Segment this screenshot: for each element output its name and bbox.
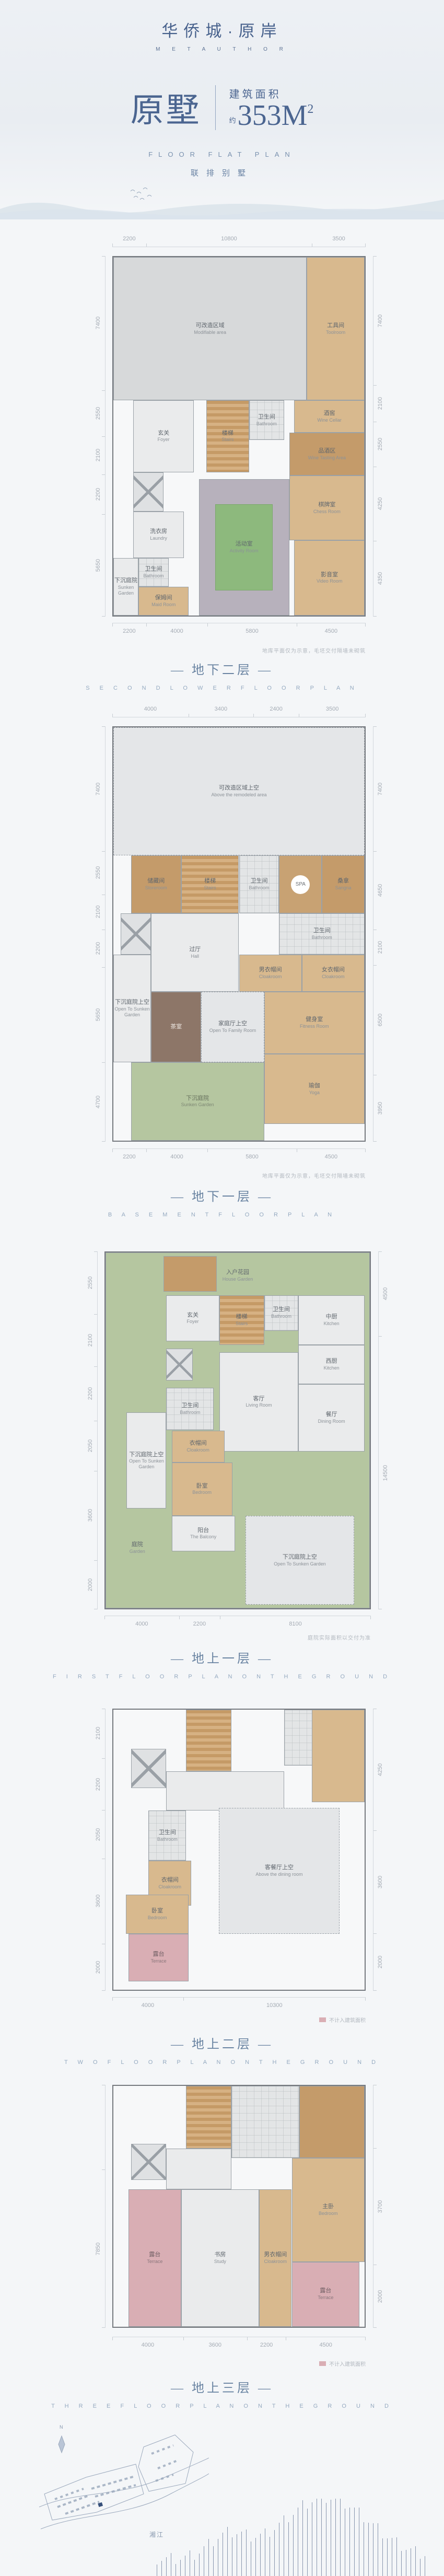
plan-body-f3: 露台Terrace书房Study男衣帽间Cloakroom主卧Bedroom露台…: [112, 2085, 366, 2328]
room-label-en: Foyer: [158, 437, 170, 443]
dim-segment: 2550: [84, 1251, 97, 1314]
room-hall: [166, 2149, 231, 2189]
room-label-en: Bathroom: [271, 1314, 291, 1319]
room-label-zh: 楼梯: [204, 878, 216, 885]
dim-segment: 2100: [373, 930, 387, 965]
room-label-zh: 棋牌室: [318, 502, 335, 509]
room-label-en: Living Room: [246, 1402, 272, 1408]
room-label-zh: 卫生间: [181, 1402, 198, 1410]
dim-label: 7400: [377, 782, 383, 795]
skyline-line: [411, 2548, 411, 2576]
brand-logo-en: M E T A U T H O R: [0, 47, 444, 52]
dim-label: 2050: [95, 1828, 101, 1840]
dim-segment: 3400: [189, 704, 253, 717]
dim-segment: 2200: [91, 474, 105, 514]
room-label-en: Hall: [191, 954, 200, 959]
dim-label: 2200: [247, 2342, 286, 2348]
dim-label: 2550: [87, 1277, 94, 1289]
dim-segment: 4700: [91, 1062, 105, 1142]
dim-chain-bottom: 400022008100: [104, 1616, 371, 1629]
skyline-line: [354, 2508, 355, 2576]
dim-label: 2400: [253, 706, 299, 712]
room-kitchen-chinese: 中厨Kitchen: [298, 1295, 365, 1345]
dim-label: 2100: [95, 1727, 101, 1739]
room-label-zh: 桑拿: [337, 878, 349, 885]
dim-label: 7400: [95, 317, 101, 329]
skyline-line: [293, 2515, 294, 2576]
room-label-en: Terrace: [151, 1958, 167, 1964]
room-label-en: Stairs: [221, 437, 233, 443]
north-arrow-icon: [59, 2436, 65, 2453]
skyline-line: [345, 2509, 345, 2576]
room-label-zh: 卧室: [196, 1483, 208, 1490]
room-tea-room: 茶室: [151, 992, 201, 1062]
dim-segment: 4000: [146, 1149, 208, 1162]
brand-logo-zh: 华侨城·原岸: [0, 18, 444, 41]
skyline-line: [368, 2523, 369, 2576]
skyline-line: [288, 2522, 289, 2576]
dim-segment: 2550: [91, 851, 105, 894]
dim-chain-left: 740025502100220056504700: [91, 726, 106, 1142]
skyline-line: [265, 2528, 265, 2576]
room-sauna: 桑拿Sangna: [322, 855, 365, 913]
room-balcony: 阳台The Balcony: [172, 1516, 235, 1551]
dim-label: 2200: [179, 1621, 220, 1627]
dim-segment: 4500: [286, 2337, 366, 2350]
dim-segment: 2200: [112, 234, 146, 247]
room-stairs: 楼梯Stairs: [206, 400, 249, 472]
room-label-zh: 入户花园: [226, 1269, 249, 1277]
room-label-zh: 过厅: [189, 946, 201, 954]
skyline-line: [270, 2537, 270, 2576]
dim-chain-top: 4000340024003500: [112, 704, 366, 717]
room-bedroom-2: 卧室Bedroom: [126, 1895, 189, 1934]
room-activity-room: 活动室Activity Room: [199, 479, 289, 616]
room-label-en: Laundry: [150, 536, 167, 541]
room-laundry: 洗衣房Laundry: [133, 512, 183, 558]
room-label-en: Bathroom: [312, 935, 332, 941]
room-label-en: Wine Cellar: [317, 417, 342, 423]
room-label-zh: 品酒区: [318, 448, 335, 455]
room-foyer: 玄关Foyer: [166, 1295, 219, 1342]
skyline-line: [161, 2561, 162, 2576]
dim-segment: 2050: [91, 1810, 105, 1859]
dim-label: 4250: [377, 497, 383, 509]
skyline-line: [185, 2556, 185, 2576]
skyline-line: [194, 2560, 195, 2576]
skyline-line: [237, 2534, 237, 2576]
room-label-en: Stairs: [236, 1321, 248, 1327]
dim-segment: 3600: [84, 1471, 97, 1560]
dim-segment: 2550: [91, 390, 105, 436]
room-wardrobe: [299, 2086, 365, 2158]
plan-body-b1: 可改造区域上空Above the remodeled area储藏间Storer…: [112, 726, 366, 1142]
area-sup: 2: [307, 102, 313, 117]
legend-label: 不计入建筑面积: [329, 2018, 366, 2024]
room-elevator: [131, 1749, 166, 1788]
room-label-zh: 客餐厅上空: [265, 1864, 294, 1872]
legend-label: 不计入建筑面积: [329, 2362, 366, 2368]
room-bathroom-1: 卫生间Bathroom: [239, 855, 279, 913]
room-garden-label: 庭院Garden: [113, 1530, 161, 1565]
room-label-en: Yoga: [309, 1090, 320, 1096]
skyline-line: [378, 2523, 378, 2576]
room-label-en: Sunken Garden: [114, 585, 138, 596]
room-label-en: Dining Room: [318, 1419, 345, 1424]
skyline-line: [387, 2538, 388, 2576]
dim-label: 2100: [95, 906, 101, 918]
dim-chain-right: 74002100255042504350: [373, 256, 387, 617]
room-kitchen-western: 西厨Kitchen: [298, 1345, 365, 1384]
north-label: N: [60, 2424, 63, 2430]
room-label-en: Bedroom: [192, 1490, 212, 1495]
dim-segment: [373, 2085, 387, 2148]
skyline-line: [255, 2538, 256, 2576]
room-elevator: [121, 913, 151, 955]
skyline-line: [396, 2537, 397, 2576]
dim-segment: 2100: [91, 895, 105, 930]
dim-chain-right: 425036002000: [373, 1709, 387, 1991]
room-sunken-void: 下沉庭院上空Open To Sunken Garden: [113, 955, 151, 1062]
room-label-zh: 男衣帽间: [259, 967, 282, 974]
area-approx: 约: [229, 115, 236, 125]
room-terrace: 露台Terrace: [128, 1934, 189, 1981]
skyline-line: [298, 2508, 298, 2576]
skyline-line: [190, 2550, 190, 2576]
dim-label: 2200: [95, 488, 101, 501]
skyline-line: [218, 2539, 218, 2576]
room-modifiable-area: 可改造区域Modifiable area: [113, 257, 307, 400]
skyline-line: [204, 2546, 204, 2576]
dim-segment: 3600: [183, 2337, 247, 2350]
room-label-en: Modifiable area: [194, 330, 226, 335]
room-label-zh: 瑜伽: [309, 1083, 320, 1090]
dim-segment: 2100: [91, 1709, 105, 1758]
area-label: 建筑面积: [229, 86, 282, 101]
room-label-en: Study: [214, 2259, 226, 2265]
room-bedroom: 卧室Bedroom: [172, 1463, 232, 1516]
plan-f3: 露台Terrace书房Study男衣帽间Cloakroom主卧Bedroom露台…: [0, 2080, 444, 2424]
skyline-line: [317, 2499, 317, 2576]
dim-segment: 7400: [91, 726, 105, 851]
dim-segment: 4000: [146, 623, 208, 636]
room-label-zh: 男衣帽间: [264, 2252, 287, 2259]
dim-label: 2100: [377, 941, 383, 954]
dim-label: 2200: [87, 1387, 94, 1399]
room-label-en: Above the remodeled area: [211, 792, 266, 798]
dim-segment: 3500: [299, 704, 366, 717]
room-label-zh: 露台: [149, 2252, 160, 2259]
room-label-zh: 楼梯: [236, 1314, 248, 1321]
room-label-zh: 下沉庭院上空: [129, 1452, 163, 1459]
room-label-en: Open To Sunken Garden: [274, 1561, 325, 1567]
dim-segment: 2200: [84, 1366, 97, 1421]
room-label-en: Sunken Garden: [181, 1102, 214, 1108]
dim-segment: 2200: [179, 1616, 220, 1629]
skyline-line: [251, 2542, 251, 2576]
room-family-void: 家庭厅上空Open To Family Room: [201, 992, 264, 1062]
room-entry-deck: [163, 1256, 216, 1292]
skyline-line: [302, 2500, 303, 2576]
dim-label: 7850: [95, 2242, 101, 2255]
dim-label: 5800: [207, 628, 296, 634]
dim-segment: 3700: [373, 2148, 387, 2265]
dim-segment: 5650: [91, 967, 105, 1063]
dim-label: 2200: [95, 942, 101, 955]
dim-label: 2000: [95, 1961, 101, 1974]
dim-label: 2100: [95, 449, 101, 461]
subtitle-en: FLOOR FLAT PLAN: [0, 150, 444, 158]
plan-body-b2: 可改造区域Modifiable area工具间Toolroom玄关Foyer楼梯…: [112, 256, 366, 617]
room-bathroom-1: 卫生间Bathroom: [249, 400, 284, 439]
room-label-zh: 卫生间: [159, 1829, 176, 1837]
dim-segment: 4350: [373, 541, 387, 617]
dim-label: 4500: [286, 2342, 366, 2348]
room-label-zh: 卧室: [151, 1908, 163, 1915]
room-label-zh: 玄关: [158, 430, 169, 437]
dim-label: 5650: [95, 1008, 101, 1021]
room-label-zh: 庭院: [132, 1541, 143, 1549]
room-sunken-void-left: 下沉庭院上空Open To Sunken Garden: [126, 1412, 166, 1509]
room-label-zh: 女衣帽间: [322, 967, 345, 974]
room-bathroom-1: 卫生间Bathroom: [264, 1295, 299, 1331]
room-label-zh: 中厨: [326, 1314, 337, 1321]
brochure-page: 华侨城·原岸 M E T A U T H O R 原墅 建筑面积 约 353M …: [0, 0, 444, 2576]
dim-segment: 3600: [373, 1830, 387, 1933]
room-label-zh: 酒窖: [324, 410, 335, 417]
room-hall: 过厅Hall: [151, 913, 239, 992]
plan-b1: 可改造区域上空Above the remodeled area储藏间Storer…: [0, 690, 444, 1244]
room-label-en: The Balcony: [190, 1534, 216, 1540]
room-foyer: 玄关Foyer: [133, 400, 193, 472]
room-label-en: Bathroom: [249, 885, 269, 891]
skyline-line: [208, 2539, 209, 2576]
dim-label: 7400: [95, 782, 101, 795]
room-sunken-void-right: 下沉庭院上空Open To Sunken Garden: [246, 1516, 354, 1605]
room-label-en: Bathroom: [157, 1837, 178, 1842]
skyline-line: [340, 2499, 341, 2576]
room-label-en: Cloakroom: [322, 974, 345, 980]
dim-segment: 6500: [373, 965, 387, 1075]
dim-chain-left: 21002200205036002000: [91, 1709, 106, 1991]
room-label-zh: SPA: [291, 875, 310, 894]
plan-caption-en: T H R E E F L O O R P L A N O N T H E G …: [0, 2403, 444, 2409]
room-label-zh: 餐厅: [326, 1411, 337, 1419]
room-fitness: 健身室Fitness Room: [264, 992, 365, 1054]
plan-body-f2: 卫生间Bathroom客餐厅上空Above the dining room衣帽间…: [112, 1709, 366, 1991]
dim-label: 5800: [207, 1154, 296, 1160]
room-label-zh: 阳台: [197, 1527, 209, 1535]
room-label-en: Open To Sunken Garden: [127, 1458, 166, 1470]
room-label-en: Toolroom: [326, 330, 345, 335]
dim-label: 10300: [183, 2002, 366, 2009]
dim-segment: 2200: [112, 1149, 146, 1162]
dim-chain-top: 2200108003500: [112, 234, 366, 247]
room-label-zh: 工具间: [327, 322, 344, 330]
title-block: 原墅 建筑面积 约 353M 2: [0, 84, 444, 132]
room-bathroom-2: 卫生间Bathroom: [138, 558, 169, 587]
plan-caption: — 地下一层 —B A S E M E N T F L O O R P L A …: [0, 1186, 444, 1218]
room-label-zh: 衣帽间: [190, 1440, 207, 1447]
skyline-decoration: [157, 2499, 443, 2576]
room-label-en: Wine Tasting Area: [308, 455, 346, 461]
room-label-en: Above the dining room: [255, 1872, 302, 1877]
room-bathroom-2: 卫生间Bathroom: [148, 1811, 186, 1861]
room-elevator: [133, 472, 163, 512]
dim-segment: 5800: [207, 1149, 296, 1162]
header: 华侨城·原岸 M E T A U T H O R 原墅 建筑面积 约 353M …: [0, 0, 444, 219]
dim-label: 2550: [377, 438, 383, 450]
dim-segment: 7400: [373, 256, 387, 385]
dim-segment: 4500: [297, 1149, 366, 1162]
room-label-en: Bathroom: [180, 1410, 200, 1415]
skyline-line: [331, 2500, 331, 2576]
room-label-en: Terrace: [318, 2295, 333, 2301]
dim-label: 4700: [95, 1096, 101, 1108]
room-label-zh: 下沉庭院上空: [283, 1554, 317, 1561]
dim-segment: 2000: [373, 2265, 387, 2328]
room-elevator: [166, 1349, 193, 1380]
room-remodeled-void: 可改造区域上空Above the remodeled area: [113, 727, 365, 855]
room-label-zh: 衣帽间: [161, 1877, 179, 1884]
dim-segment: 2200: [91, 1758, 105, 1810]
room-storeroom: 储藏间Storeroom: [131, 855, 181, 913]
room-terrace-left: 露台Terrace: [128, 2189, 181, 2327]
room-label-zh: 茶室: [170, 1024, 182, 1031]
area-block: 建筑面积 约 353M 2: [229, 86, 314, 130]
skyline-line: [392, 2538, 392, 2576]
dim-segment: 3500: [312, 234, 366, 247]
room-label-en: Kitchen: [324, 1321, 340, 1327]
area-value: 353M: [238, 101, 308, 130]
room-label-zh: 露台: [320, 2288, 331, 2295]
dim-segment: 4500: [297, 623, 366, 636]
skyline-line: [373, 2523, 373, 2576]
plan-note: 地库平面仅为示意，毛坯交付隔墙未砌筑: [112, 1171, 366, 1179]
page-title: 原墅: [131, 84, 202, 132]
plan-caption: — 地上二层 —T W O F L O O R P L A N O N T H …: [0, 2034, 444, 2066]
dim-label: 2550: [95, 866, 101, 879]
dim-segment: 2200: [91, 930, 105, 967]
dim-chain-bottom: 400010300: [112, 1997, 366, 2010]
dim-label: 4500: [382, 1287, 389, 1300]
room-sunken-garden: 下沉庭院Sunken Garden: [131, 1062, 264, 1141]
dim-segment: 8100: [220, 1616, 371, 1629]
plan-caption-zh: — 地下一层 —: [0, 1186, 444, 1204]
plan-caption: — 地下二层 —S E C O N D L O W E R F L O O R …: [0, 659, 444, 691]
dim-label: 2550: [95, 407, 101, 420]
room-label-en: Cloakroom: [259, 974, 282, 980]
dim-segment: 5650: [91, 514, 105, 617]
dim-segment: 14500: [379, 1336, 392, 1609]
dim-segment: 4650: [373, 851, 387, 930]
skyline-line: [213, 2546, 214, 2576]
room-label-en: Open To Sunken Garden: [114, 1006, 150, 1018]
skyline-line: [284, 2515, 284, 2576]
dim-segment: 4250: [373, 467, 387, 541]
dim-label: 2000: [87, 1579, 94, 1591]
skyline-line: [241, 2532, 242, 2576]
dim-segment: 4000: [112, 1998, 183, 2010]
dim-label: 8100: [220, 1621, 371, 1627]
room-label-zh: 露台: [153, 1951, 165, 1958]
room-label-en: Garden: [130, 1549, 145, 1554]
dim-segment: 5800: [207, 623, 296, 636]
room-label-en: Foyer: [186, 1319, 198, 1325]
room-dining-void: 客餐厅上空Above the dining room: [219, 1808, 340, 1934]
dim-label: 7400: [377, 314, 383, 327]
room-label-zh: 家庭厅上空: [218, 1020, 247, 1028]
dim-label: 3600: [183, 2342, 247, 2348]
room-label-en: Activity Room: [230, 548, 259, 554]
dim-chain-bottom: 4000360022004500: [112, 2337, 366, 2350]
room-label-zh: 储藏间: [147, 878, 165, 885]
room-label-en: Fitness Room: [300, 1024, 329, 1029]
dim-label: 3600: [377, 1875, 383, 1888]
room-sunken-garden: 下沉庭院Sunken Garden: [113, 558, 138, 616]
room-label-zh: 下沉庭院: [186, 1095, 209, 1103]
skyline-line: [157, 2565, 157, 2576]
room-cloakroom: 衣帽间Cloakroom: [172, 1431, 225, 1463]
dim-segment: 2550: [373, 422, 387, 466]
skyline-line: [364, 2522, 364, 2576]
dim-label: 3400: [189, 706, 253, 712]
dim-segment: 4000: [112, 2337, 183, 2350]
dim-segment: 2100: [91, 436, 105, 474]
room-label-zh: 西厨: [326, 1358, 337, 1365]
skyline-line: [223, 2533, 223, 2576]
legend-not-counted: 不计入建筑面积: [112, 2016, 366, 2024]
room-label-en: Maid Room: [151, 602, 176, 608]
skyline-line: [176, 2564, 176, 2576]
legend-not-counted: 不计入建筑面积: [112, 2360, 366, 2368]
dim-label: 3600: [87, 1509, 94, 1522]
dim-label: 4000: [146, 1154, 208, 1160]
room-stairs: 楼梯Stairs: [181, 855, 239, 913]
room-bedroom-1: [312, 1710, 365, 1802]
dim-segment: 2400: [253, 704, 299, 717]
skyline-line: [166, 2557, 167, 2576]
plan-f2: 卫生间Bathroom客餐厅上空Above the dining room衣帽间…: [0, 1703, 444, 2080]
dim-segment: 3600: [91, 1859, 105, 1944]
room-label-en: Terrace: [147, 2259, 162, 2265]
room-label-zh: 活动室: [236, 541, 253, 548]
dim-label: 4000: [112, 2002, 183, 2009]
room-bathroom-2: 卫生间Bathroom: [166, 1388, 214, 1431]
dim-label: 2000: [377, 2290, 383, 2302]
plan-caption-en: B A S E M E N T F L O O R P L A N: [0, 1212, 444, 1218]
dim-segment: 2050: [84, 1421, 97, 1471]
skyline-line: [321, 2499, 322, 2576]
room-label-zh: 洗衣房: [150, 528, 167, 536]
skyline-line: [335, 2499, 336, 2576]
room-label-zh: 卫生间: [250, 878, 267, 885]
room-label-zh: 可改造区域: [196, 322, 225, 330]
brand-logo: 华侨城·原岸 M E T A U T H O R: [0, 18, 444, 52]
dim-chain-left: 7850: [91, 2085, 106, 2328]
dim-label: 14500: [382, 1465, 389, 1481]
skyline-line: [326, 2503, 326, 2576]
plan-caption-zh: — 地上二层 —: [0, 2034, 444, 2052]
skyline-line: [307, 2509, 308, 2576]
terrace-swatch-icon: [319, 2361, 326, 2366]
skyline-line: [420, 2559, 420, 2576]
skyline-line: [232, 2537, 232, 2576]
birds-icon: [131, 188, 151, 200]
room-label-en: Storeroom: [145, 885, 167, 891]
dim-label: 4500: [297, 628, 366, 634]
room-label-en: Sangna: [335, 885, 352, 891]
